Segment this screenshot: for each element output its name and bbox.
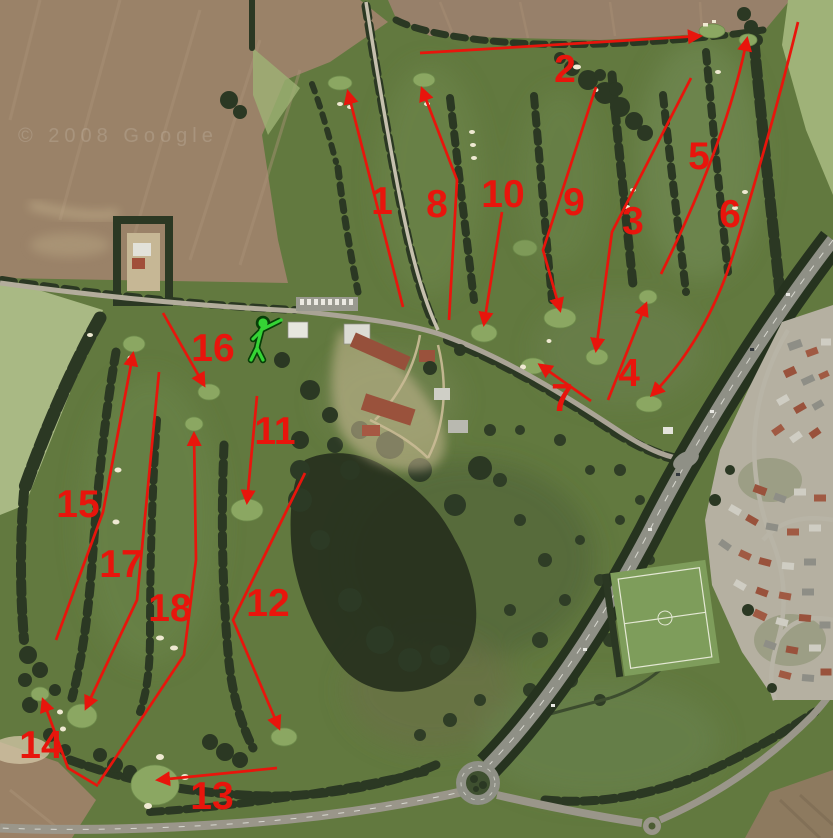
hole-1-label: 1 — [371, 180, 393, 223]
mini-roundabout — [643, 817, 661, 835]
hole-15-label: 15 — [56, 483, 99, 526]
cottage-by-junction — [663, 427, 673, 434]
hole-5-label: 5 — [688, 135, 710, 178]
red-roof-outbuilding — [419, 350, 435, 362]
farm-white-building — [133, 243, 151, 256]
hole-4-label: 4 — [618, 352, 640, 395]
hole-11-label: 11 — [254, 410, 295, 453]
aerial-map-canvas: © 2008 Google 1 2 3 4 5 6 7 8 9 10 11 12… — [0, 0, 833, 838]
hole-14-label: 14 — [19, 724, 63, 767]
hole-2-label: 2 — [554, 48, 576, 91]
outbuilding — [434, 388, 450, 400]
car-park — [296, 297, 358, 311]
hole-18-label: 18 — [148, 587, 191, 630]
outbuilding-2 — [448, 420, 468, 433]
white-building — [288, 322, 308, 338]
aerial-map: © 2008 Google 1 2 3 4 5 6 7 8 9 10 11 12… — [0, 0, 833, 838]
red-roof-building — [362, 425, 380, 436]
hole-3-label: 3 — [622, 200, 644, 243]
hole-9-label: 9 — [563, 181, 585, 224]
hole-6-label: 6 — [719, 193, 741, 236]
golf-ball-dot — [279, 318, 283, 322]
hole-12-label: 12 — [246, 582, 289, 625]
sports-pitch — [605, 560, 719, 677]
hole-17-label: 17 — [99, 543, 142, 586]
hole-8-label: 8 — [426, 183, 448, 226]
hole-16-label: 16 — [191, 327, 234, 370]
imagery-watermark: © 2008 Google — [18, 125, 218, 147]
farm-red-roof-building — [132, 258, 145, 269]
hole-10-label: 10 — [481, 173, 524, 216]
hole-13-label: 13 — [190, 775, 233, 818]
roundabout — [456, 761, 500, 805]
hole-7-label: 7 — [551, 377, 573, 420]
